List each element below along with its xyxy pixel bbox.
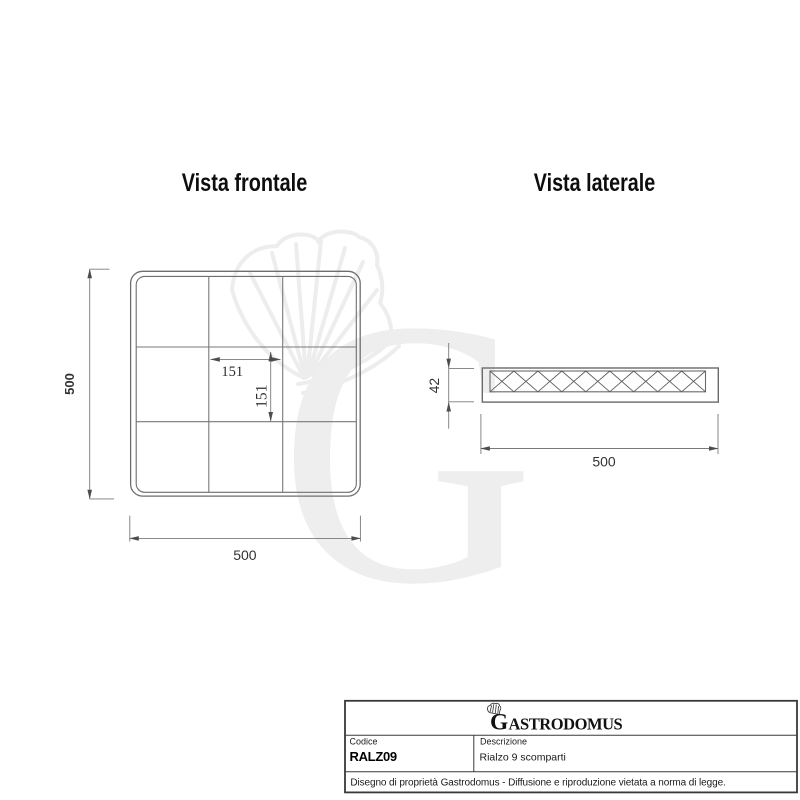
svg-text:151: 151 <box>254 385 271 408</box>
svg-text:Descrizione: Descrizione <box>480 737 527 747</box>
svg-text:G: G <box>490 710 508 736</box>
svg-text:Disegno di proprietà Gastrodom: Disegno di proprietà Gastrodomus - Diffu… <box>350 777 725 788</box>
svg-text:500: 500 <box>233 547 257 563</box>
svg-text:500: 500 <box>592 454 616 470</box>
svg-text:Vista laterale: Vista laterale <box>534 169 655 197</box>
svg-text:RALZ09: RALZ09 <box>350 749 397 764</box>
svg-text:Codice: Codice <box>350 736 378 746</box>
svg-text:42: 42 <box>426 378 442 394</box>
svg-text:Vista frontale: Vista frontale <box>182 169 308 197</box>
svg-text:ASTRODOMUS: ASTRODOMUS <box>509 714 623 733</box>
svg-text:G: G <box>279 242 534 662</box>
svg-text:151: 151 <box>221 364 243 380</box>
svg-text:Rialzo 9 scomparti: Rialzo 9 scomparti <box>480 752 566 764</box>
svg-text:500: 500 <box>62 373 77 395</box>
